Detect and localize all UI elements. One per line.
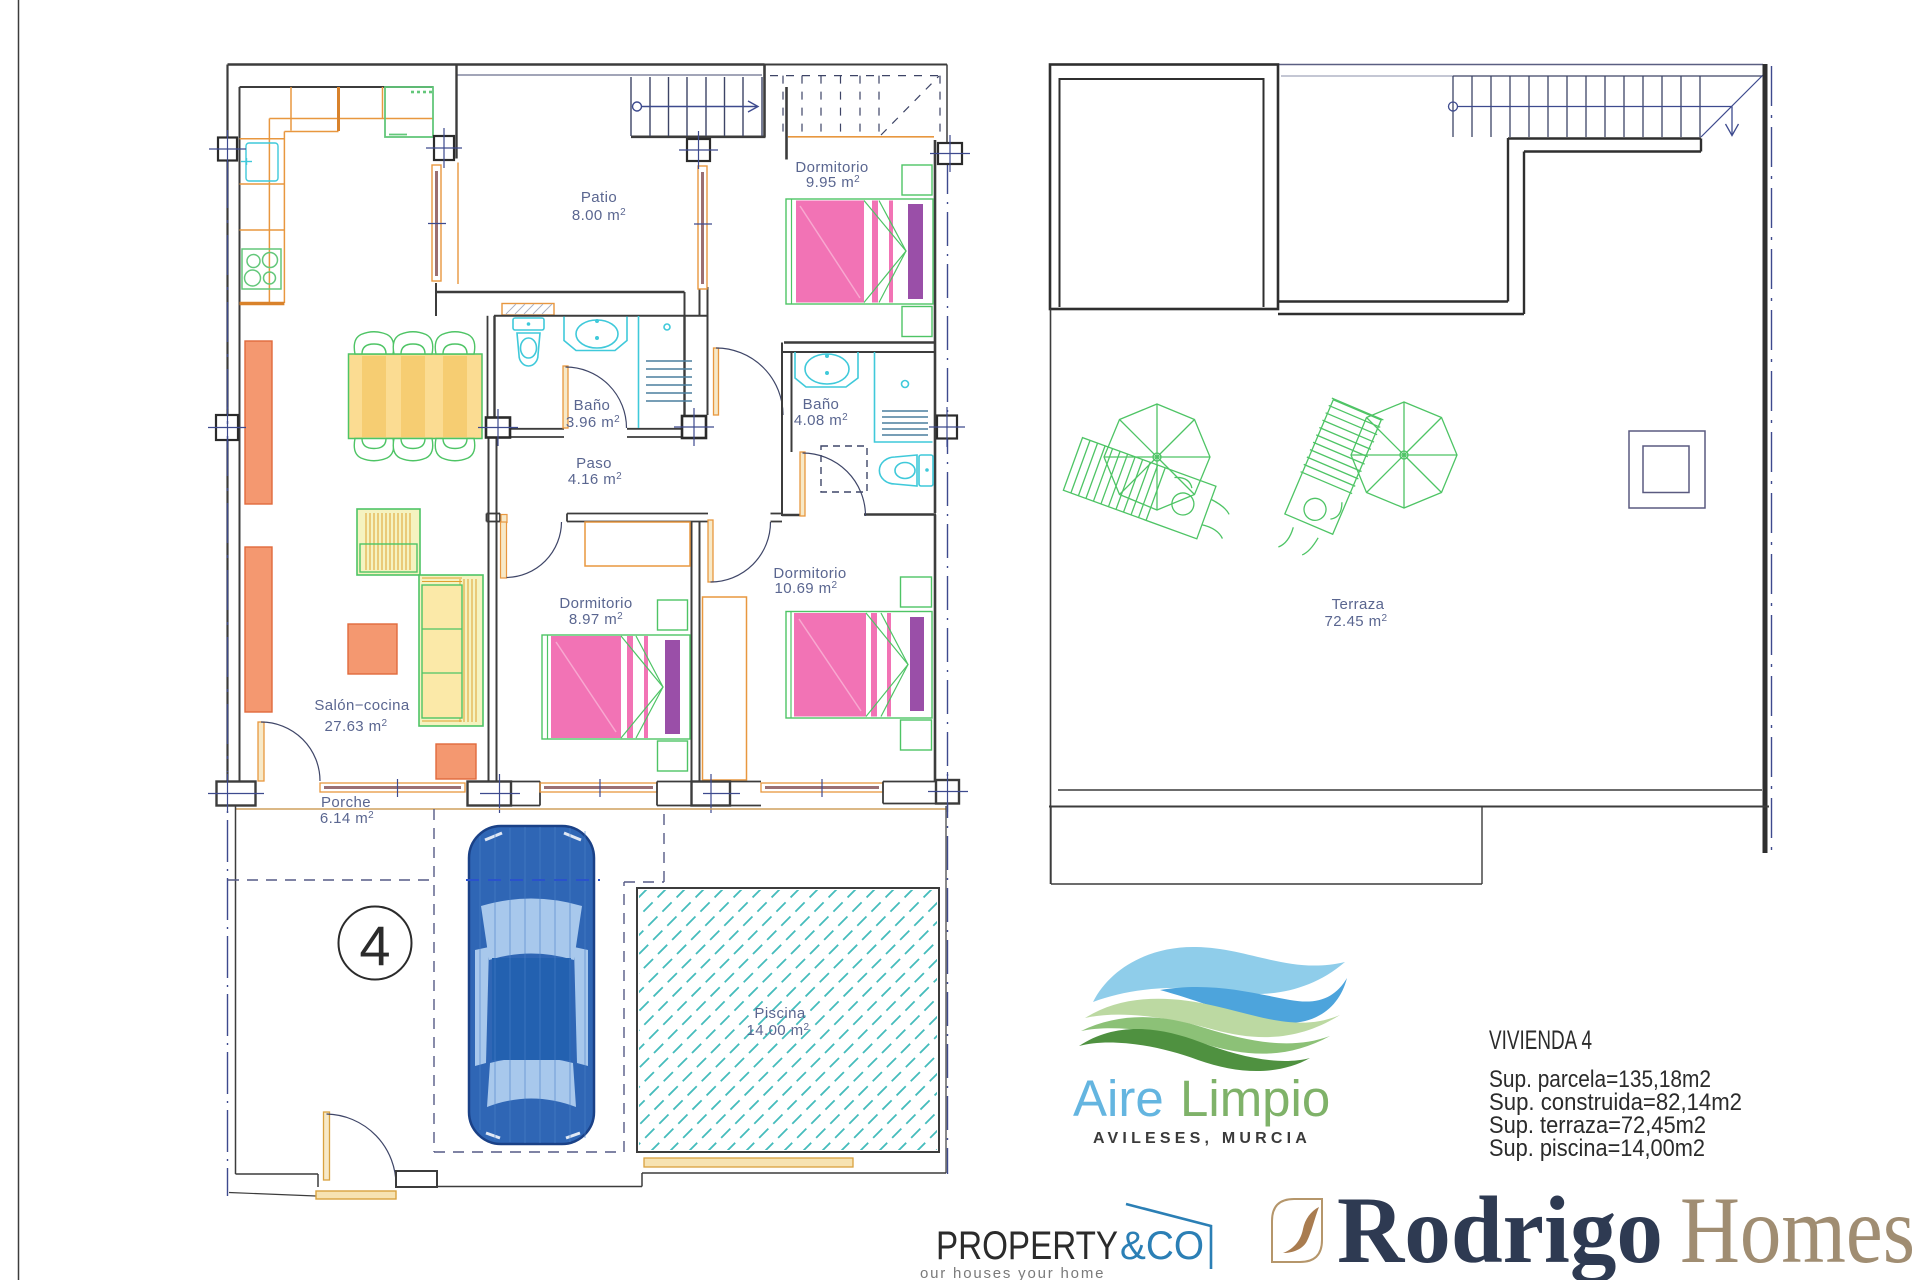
- svg-text:27.63 m2: 27.63 m2: [325, 718, 388, 735]
- svg-text:Limpio: Limpio: [1180, 1070, 1330, 1127]
- svg-text:Homes: Homes: [1680, 1177, 1915, 1280]
- svg-text:4.08 m2: 4.08 m2: [794, 412, 848, 429]
- svg-text:4: 4: [359, 914, 390, 977]
- svg-text:Sup. piscina=14,00m2: Sup. piscina=14,00m2: [1489, 1135, 1705, 1162]
- svg-text:our houses your home: our houses your home: [920, 1265, 1105, 1280]
- svg-text:14.00 m2: 14.00 m2: [747, 1022, 810, 1039]
- svg-text:9.95 m2: 9.95 m2: [806, 174, 860, 191]
- svg-text:Baño: Baño: [574, 397, 611, 414]
- svg-text:PROPERTY: PROPERTY: [936, 1224, 1118, 1268]
- svg-text:&CO: &CO: [1120, 1224, 1204, 1268]
- svg-text:Patio: Patio: [581, 189, 617, 206]
- svg-text:Terraza: Terraza: [1332, 596, 1385, 613]
- svg-text:8.97 m2: 8.97 m2: [569, 611, 623, 628]
- svg-text:AVILESES, MURCIA: AVILESES, MURCIA: [1093, 1130, 1311, 1147]
- svg-text:Dormitorio: Dormitorio: [559, 595, 632, 612]
- svg-text:Baño: Baño: [803, 396, 840, 413]
- svg-text:VIVIENDA 4: VIVIENDA 4: [1489, 1025, 1592, 1055]
- svg-text:4.16 m2: 4.16 m2: [568, 471, 622, 488]
- svg-text:Rodrigo: Rodrigo: [1337, 1177, 1663, 1280]
- svg-text:Aire: Aire: [1073, 1070, 1164, 1127]
- svg-text:Salón−cocina: Salón−cocina: [314, 697, 410, 714]
- svg-text:Porche: Porche: [321, 794, 371, 811]
- svg-text:3.96 m2: 3.96 m2: [566, 414, 620, 431]
- svg-text:6.14 m2: 6.14 m2: [320, 810, 374, 827]
- svg-text:72.45 m2: 72.45 m2: [1325, 613, 1388, 630]
- svg-text:10.69 m2: 10.69 m2: [775, 580, 838, 597]
- svg-text:Paso: Paso: [576, 455, 612, 472]
- svg-text:8.00 m2: 8.00 m2: [572, 207, 626, 224]
- svg-text:Piscina: Piscina: [754, 1005, 805, 1022]
